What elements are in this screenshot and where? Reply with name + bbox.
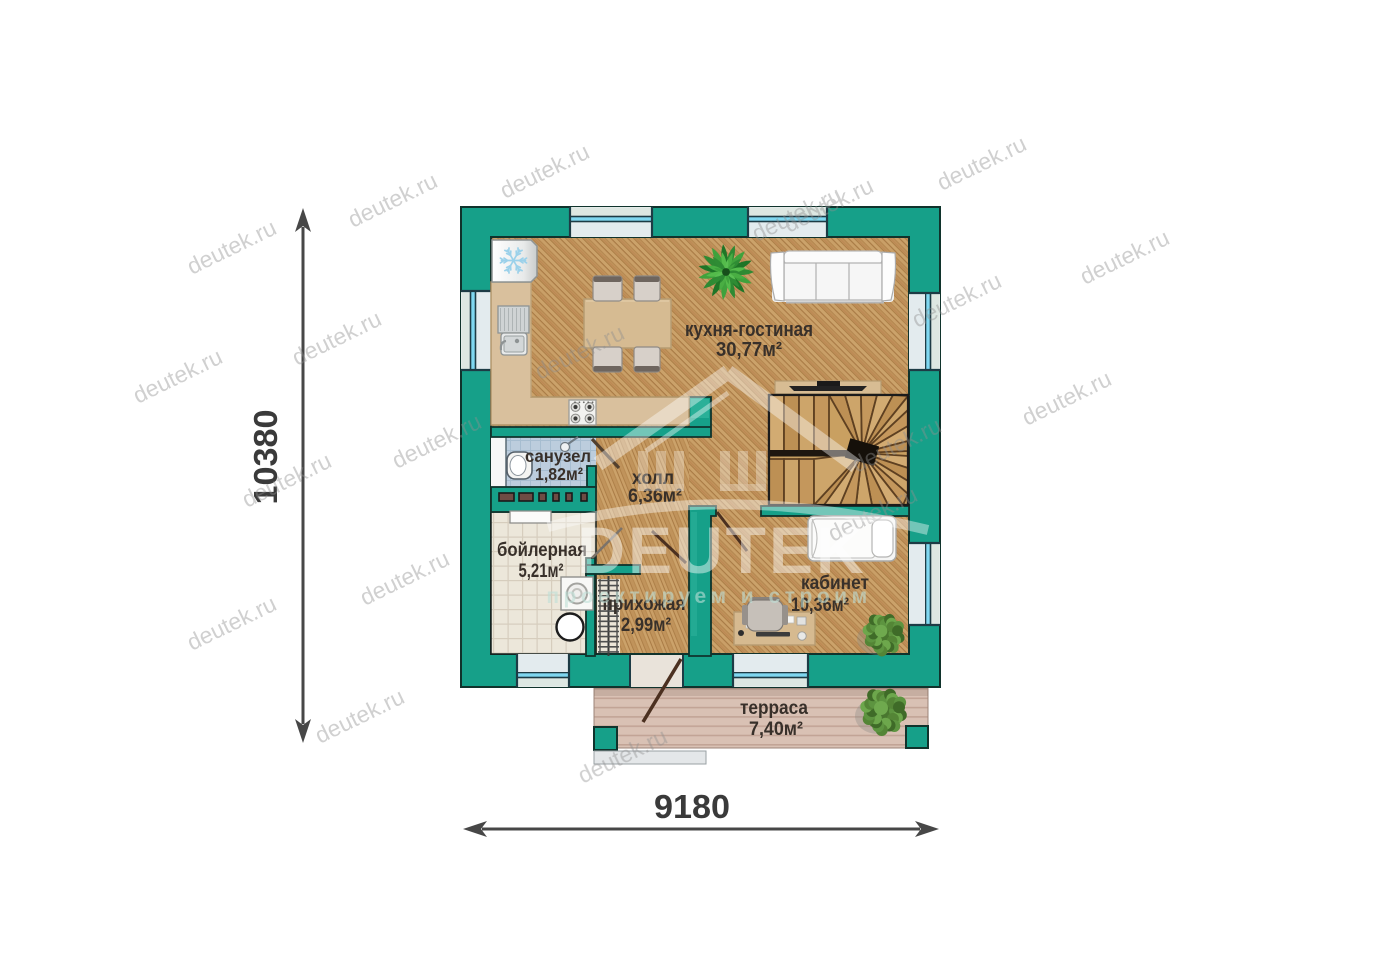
svg-text:7,40м²: 7,40м² (749, 718, 803, 740)
svg-text:5,21м²: 5,21м² (519, 560, 564, 582)
svg-text:терраса: терраса (740, 697, 808, 719)
svg-text:санузел: санузел (525, 446, 591, 466)
svg-text:кухня-гостиная: кухня-гостиная (685, 319, 813, 341)
svg-text:9180: 9180 (654, 788, 730, 825)
svg-text:DEUTEK: DEUTEK (577, 513, 866, 587)
svg-text:проектируем и строим: проектируем и строим (546, 585, 871, 608)
svg-text:30,77м²: 30,77м² (716, 339, 782, 361)
svg-text:2,99м²: 2,99м² (621, 614, 671, 636)
svg-text:бойлерная: бойлерная (497, 539, 587, 561)
svg-text:1,82м²: 1,82м² (535, 464, 583, 484)
